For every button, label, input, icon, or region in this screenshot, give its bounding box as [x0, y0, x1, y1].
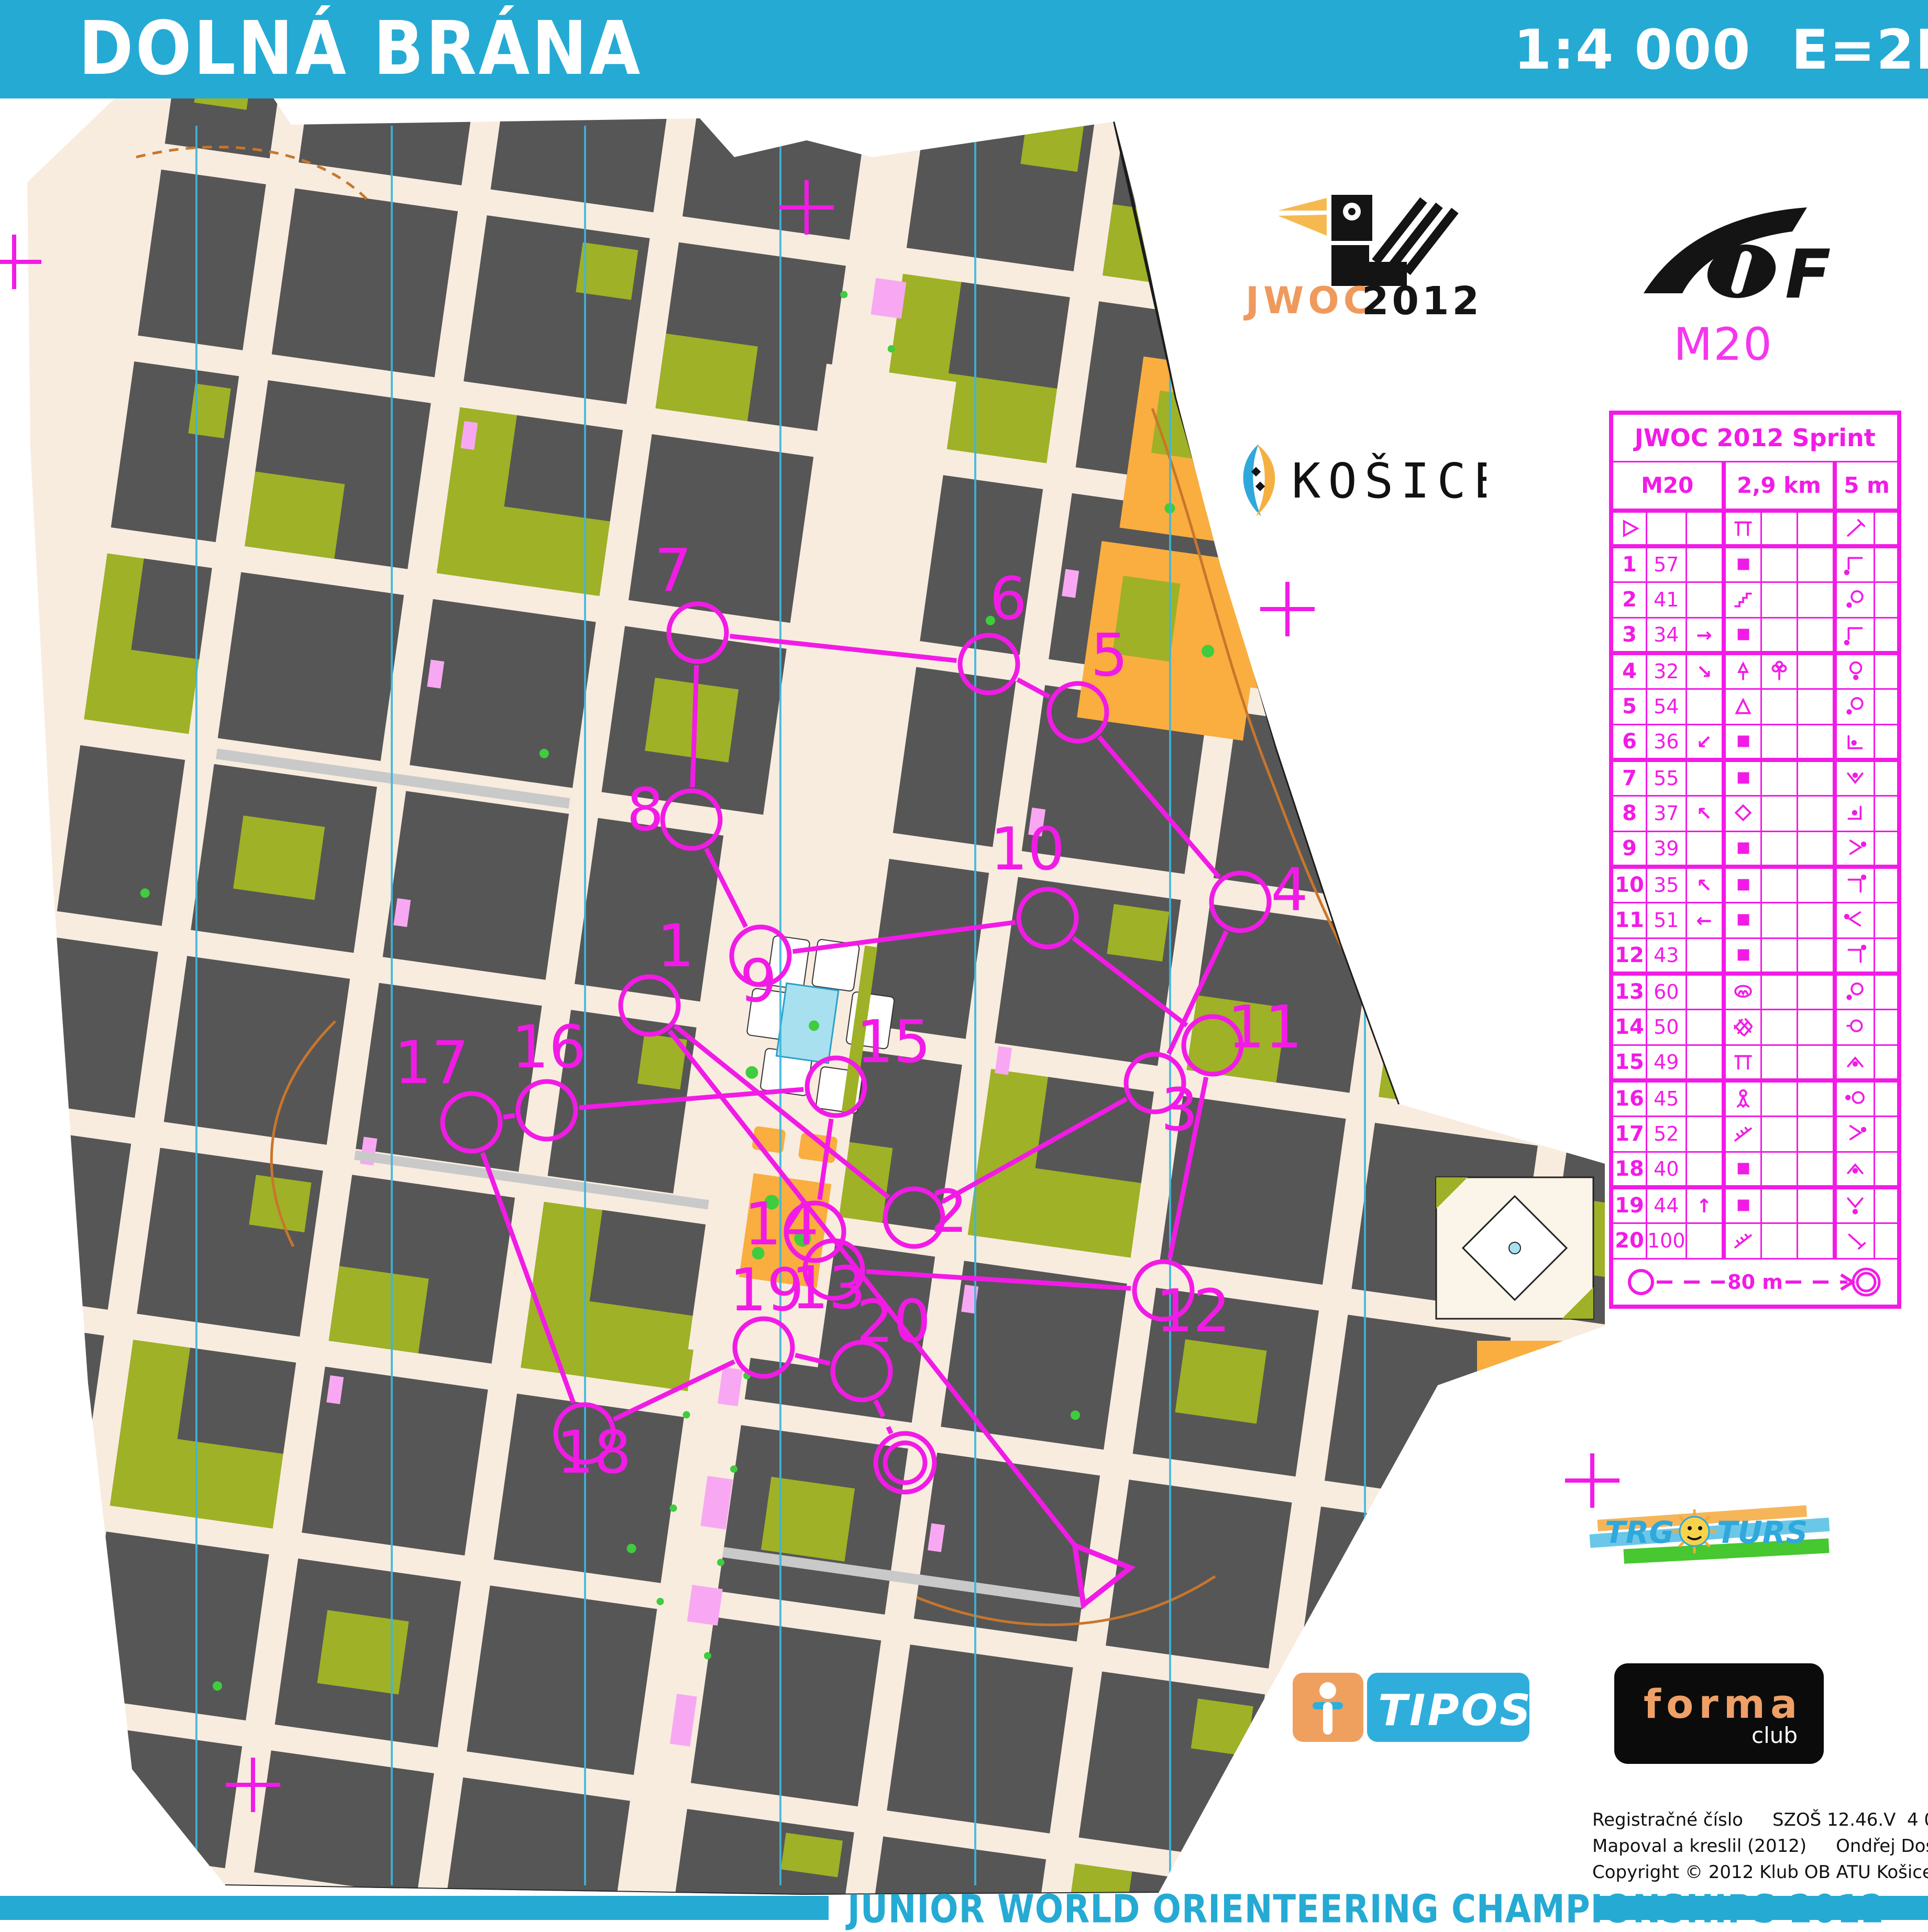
- card-colH: [1874, 831, 1899, 867]
- card-colH: [1874, 546, 1899, 582]
- banner-text: JUNIOR WORLD ORIENTEERING CHAMPIONSHIPS …: [847, 1887, 1591, 1932]
- card-colE: [1761, 546, 1797, 582]
- card-colG: [1835, 974, 1875, 1009]
- card-colG: [1835, 831, 1875, 867]
- corner-a-icon: [1843, 553, 1867, 577]
- card-colD: [1724, 974, 1761, 1009]
- card-colC: [1686, 582, 1724, 617]
- card-colC: [1686, 1116, 1724, 1152]
- crosshatch-icon: [1731, 1015, 1755, 1039]
- card-colH: [1874, 1080, 1899, 1116]
- card-colD: [1724, 1045, 1761, 1080]
- trgoturs-right: TURS: [1717, 1515, 1808, 1550]
- credit-row: Registračné číslo SZOŠ 12.46.V 4 000: [1592, 1807, 1928, 1833]
- control-number-9: 9: [740, 947, 777, 1015]
- card-colE: [1761, 796, 1797, 831]
- card-row-19: 19 44 ↑: [1611, 1187, 1899, 1223]
- corner-c-icon: [1843, 943, 1867, 967]
- card-colE: [1761, 867, 1797, 902]
- control-number-18: 18: [557, 1419, 632, 1487]
- card-colF: [1797, 546, 1835, 582]
- forma-sub: club: [1751, 1723, 1798, 1748]
- statue-icon: [1731, 1087, 1755, 1111]
- card-colD: [1724, 724, 1761, 760]
- diamond-icon: [1731, 801, 1755, 825]
- card-colC: [1686, 1045, 1724, 1080]
- control-number-8: 8: [626, 776, 664, 844]
- card-colD: [1724, 760, 1761, 796]
- canopy-icon: [1731, 516, 1755, 540]
- card-colC: [1686, 511, 1724, 546]
- card-colG: [1835, 653, 1875, 689]
- card-class-row: M20 2,9 km 5 m: [1611, 462, 1899, 511]
- card-colG: [1835, 1045, 1875, 1080]
- card-code: 34: [1647, 617, 1687, 653]
- card-colD: [1724, 796, 1761, 831]
- card-colE: [1761, 1223, 1797, 1258]
- card-colG: [1835, 1187, 1875, 1223]
- control-description-card: JWOC 2012 Sprint M20 2,9 km 5 m 1 57 2 4…: [1609, 411, 1901, 1309]
- card-colH: [1874, 511, 1899, 546]
- card-colF: [1797, 902, 1835, 938]
- card-row-2: 2 41: [1611, 582, 1899, 617]
- dot-circle-icon: [1843, 1087, 1867, 1111]
- card-length: 2,9 km: [1724, 462, 1835, 511]
- circle-dot-sw-icon: [1843, 694, 1867, 719]
- card-colF: [1797, 831, 1835, 867]
- card-code: 32: [1647, 653, 1687, 689]
- card-no: 18: [1611, 1152, 1647, 1187]
- card-colH: [1874, 724, 1899, 760]
- card-colD: [1724, 1116, 1761, 1152]
- bush-icon: [1767, 659, 1791, 683]
- forma-club-logo: forma club: [1614, 1663, 1829, 1768]
- card-row-3: 3 34 →: [1611, 617, 1899, 653]
- card-no: 19: [1611, 1187, 1647, 1223]
- start-tri-icon: [1617, 516, 1641, 540]
- control-number-2: 2: [930, 1178, 967, 1246]
- building-icon: [1731, 873, 1755, 897]
- card-colG: [1835, 902, 1875, 938]
- card-colF: [1797, 1045, 1835, 1080]
- card-code: 40: [1647, 1152, 1687, 1187]
- card-colD: [1724, 938, 1761, 974]
- card-colD: [1724, 867, 1761, 902]
- triangle-icon: [1731, 694, 1755, 719]
- v-dot-below-icon: [1843, 1194, 1867, 1218]
- map-title: DOLNÁ BRÁNA: [79, 5, 642, 92]
- card-colG: [1835, 1116, 1875, 1152]
- kosice-wordmark: KOŠICE: [1292, 452, 1486, 509]
- card-code: 41: [1647, 582, 1687, 617]
- wall-icon: [1731, 1229, 1755, 1253]
- building-icon: [1731, 836, 1755, 860]
- card-colG: [1835, 582, 1875, 617]
- card-title: JWOC 2012 Sprint: [1611, 413, 1899, 462]
- credit-value: SZOŠ 12.46.V 4 000: [1772, 1807, 1928, 1833]
- credit-row: Copyright © 2012 Klub OB ATU Košice: [1592, 1859, 1928, 1885]
- card-colG: [1835, 689, 1875, 724]
- corner-c-icon: [1843, 873, 1867, 897]
- card-row-5: 5 54: [1611, 689, 1899, 724]
- card-colH: [1874, 653, 1899, 689]
- card-colC: ↘: [1686, 653, 1724, 689]
- card-colG: [1835, 796, 1875, 831]
- card-no: 5: [1611, 689, 1647, 724]
- card-code: 43: [1647, 938, 1687, 974]
- card-no: 6: [1611, 724, 1647, 760]
- control-number-6: 6: [989, 565, 1027, 633]
- control-number-1: 1: [657, 912, 694, 980]
- svg-text:80 m: 80 m: [1727, 1271, 1783, 1294]
- card-colE: [1761, 617, 1797, 653]
- building-icon: [1731, 553, 1755, 577]
- control-number-3: 3: [1161, 1076, 1198, 1144]
- card-code: 100: [1647, 1223, 1687, 1258]
- banner-bar-left: [0, 1896, 829, 1920]
- v-dot-icon: [1843, 766, 1867, 790]
- card-colF: [1797, 582, 1835, 617]
- card-colC: [1686, 1152, 1724, 1187]
- card-colG: [1835, 724, 1875, 760]
- card-colF: [1797, 653, 1835, 689]
- building-icon: [1731, 766, 1755, 790]
- card-colH: [1874, 1152, 1899, 1187]
- card-colF: [1797, 938, 1835, 974]
- card-colF: [1797, 1080, 1835, 1116]
- card-colG: [1835, 617, 1875, 653]
- card-code: 51: [1647, 902, 1687, 938]
- card-colE: [1761, 1009, 1797, 1045]
- tree-icon: [1731, 659, 1755, 683]
- card-colH: [1874, 582, 1899, 617]
- card-colG: [1835, 511, 1875, 546]
- card-colG: [1835, 1152, 1875, 1187]
- card-scale: 80 m: [1611, 1258, 1899, 1307]
- card-colE: [1761, 1080, 1797, 1116]
- card-colC: ←: [1686, 902, 1724, 938]
- card-colD: [1724, 582, 1761, 617]
- bird-beak-lower-icon: [1278, 215, 1327, 236]
- card-colE: [1761, 974, 1797, 1009]
- forma-wordmark: forma: [1644, 1681, 1802, 1727]
- card-colF: [1797, 617, 1835, 653]
- card-no: 1: [1611, 546, 1647, 582]
- card-colE: [1761, 1187, 1797, 1223]
- tick-se-icon: [1843, 1229, 1867, 1253]
- tipos-wordmark: TIPOS: [1378, 1686, 1533, 1736]
- card-code: 45: [1647, 1080, 1687, 1116]
- card-colG: [1835, 546, 1875, 582]
- card-code: 36: [1647, 724, 1687, 760]
- card-colH: [1874, 1045, 1899, 1080]
- card-code: 37: [1647, 796, 1687, 831]
- building-icon: [1731, 623, 1755, 647]
- card-colC: [1686, 1080, 1724, 1116]
- card-no: 12: [1611, 938, 1647, 974]
- card-colD: [1724, 653, 1761, 689]
- card-row-17: 17 52: [1611, 1116, 1899, 1152]
- card-no: 17: [1611, 1116, 1647, 1152]
- card-colH: [1874, 1116, 1899, 1152]
- card-colE: [1761, 582, 1797, 617]
- card-no: 10: [1611, 867, 1647, 902]
- card-row-start: [1611, 511, 1899, 546]
- card-colD: [1724, 1080, 1761, 1116]
- card-colD: [1724, 902, 1761, 938]
- credit-label: Mapoval a kreslil (2012): [1592, 1833, 1806, 1859]
- iof-logo: F: [1634, 204, 1859, 314]
- stairs-icon: [1731, 588, 1755, 612]
- card-colG: [1835, 1080, 1875, 1116]
- card-code: 57: [1647, 546, 1687, 582]
- card-row-10: 10 35 ↖: [1611, 867, 1899, 902]
- control-number-4: 4: [1271, 856, 1308, 924]
- kosice-eye-orange-icon: [1256, 444, 1275, 516]
- card-colE: [1761, 760, 1797, 796]
- card-colE: [1761, 1045, 1797, 1080]
- card-no: 16: [1611, 1080, 1647, 1116]
- circle-tick-icon: [1843, 1015, 1867, 1039]
- card-code: 44: [1647, 1187, 1687, 1223]
- card-code: 55: [1647, 760, 1687, 796]
- card-colC: [1686, 831, 1724, 867]
- card-colG: [1835, 867, 1875, 902]
- card-no: 7: [1611, 760, 1647, 796]
- credit-label: Copyright © 2012 Klub OB ATU Košice: [1592, 1859, 1928, 1885]
- card-colE: [1761, 724, 1797, 760]
- card-code: 50: [1647, 1009, 1687, 1045]
- corner-b-icon: [1843, 801, 1867, 825]
- card-colC: [1686, 546, 1724, 582]
- circle-dot-sw-icon: [1843, 588, 1867, 612]
- card-colH: [1874, 974, 1899, 1009]
- card-code: 35: [1647, 867, 1687, 902]
- control-number-12: 12: [1156, 1277, 1231, 1345]
- card-colF: [1797, 974, 1835, 1009]
- control-number-16: 16: [512, 1013, 587, 1081]
- card-no: 4: [1611, 653, 1647, 689]
- card-row-14: 14 50: [1611, 1009, 1899, 1045]
- bird-beak-icon: [1278, 198, 1327, 211]
- card-colF: [1797, 760, 1835, 796]
- orienteering-map-sheet: { "colors": { "header_cyan": "#25AAD4", …: [0, 0, 1928, 1932]
- card-colC: [1686, 760, 1724, 796]
- card-colD: [1724, 546, 1761, 582]
- card-code: 39: [1647, 831, 1687, 867]
- building-icon: [1731, 908, 1755, 932]
- card-no: 20: [1611, 1223, 1647, 1258]
- wall-icon: [1731, 1122, 1755, 1146]
- card-no: 8: [1611, 796, 1647, 831]
- card-colH: [1874, 867, 1899, 902]
- card-row-18: 18 40: [1611, 1152, 1899, 1187]
- card-no: [1611, 511, 1647, 546]
- corner-dot-in-icon: [1843, 730, 1867, 754]
- card-colF: [1797, 1009, 1835, 1045]
- card-colD: [1724, 831, 1761, 867]
- control-number-17: 17: [394, 1029, 469, 1097]
- hat-dot-icon: [1843, 1157, 1867, 1181]
- card-colH: [1874, 617, 1899, 653]
- card-colE: [1761, 511, 1797, 546]
- building-icon: [1731, 1157, 1755, 1181]
- card-row-7: 7 55: [1611, 760, 1899, 796]
- credit-value: Ondřej Dostál: [1836, 1833, 1928, 1859]
- card-colH: [1874, 1009, 1899, 1045]
- card-row-15: 15 49: [1611, 1045, 1899, 1080]
- building-icon: [1731, 943, 1755, 967]
- card-no: 2: [1611, 582, 1647, 617]
- card-row-13: 13 60: [1611, 974, 1899, 1009]
- control-description-table: JWOC 2012 Sprint M20 2,9 km 5 m 1 57 2 4…: [1609, 411, 1901, 1309]
- control-number-19: 19: [730, 1256, 805, 1324]
- card-colC: [1686, 689, 1724, 724]
- building-icon: [1731, 730, 1755, 754]
- card-no: 15: [1611, 1045, 1647, 1080]
- card-colD: [1724, 689, 1761, 724]
- card-colE: [1761, 938, 1797, 974]
- map-terrain: [0, 0, 1821, 1932]
- card-colH: [1874, 796, 1899, 831]
- card-code: 60: [1647, 974, 1687, 1009]
- card-colC: ↖: [1686, 796, 1724, 831]
- bird-wing-stripes-icon: [1375, 200, 1455, 272]
- card-colD: [1724, 617, 1761, 653]
- card-no: 9: [1611, 831, 1647, 867]
- card-colC: ↙: [1686, 724, 1724, 760]
- circle-dot-s-icon: [1843, 659, 1867, 683]
- card-colD: [1724, 1152, 1761, 1187]
- card-code: 54: [1647, 689, 1687, 724]
- card-colF: [1797, 867, 1835, 902]
- card-colE: [1761, 1152, 1797, 1187]
- course-leg: [503, 1116, 515, 1117]
- iof-letter-f: F: [1785, 236, 1831, 314]
- oval-m-icon: [1731, 980, 1755, 1004]
- control-number-20: 20: [856, 1288, 931, 1356]
- control-number-5: 5: [1090, 622, 1128, 690]
- card-colG: [1835, 760, 1875, 796]
- card-code: 52: [1647, 1116, 1687, 1152]
- map-credits: Registračné číslo SZOŠ 12.46.V 4 000 Map…: [1592, 1807, 1928, 1885]
- card-colC: [1686, 974, 1724, 1009]
- card-row-11: 11 51 ←: [1611, 902, 1899, 938]
- gt-dot-icon: [1843, 1122, 1867, 1146]
- card-colH: [1874, 938, 1899, 974]
- card-row-20: 20 100: [1611, 1223, 1899, 1258]
- card-colC: →: [1686, 617, 1724, 653]
- card-colD: [1724, 1223, 1761, 1258]
- control-number-7: 7: [654, 537, 691, 605]
- corner-a-icon: [1843, 623, 1867, 647]
- card-no: 3: [1611, 617, 1647, 653]
- card-colF: [1797, 1223, 1835, 1258]
- card-row-4: 4 32 ↘: [1611, 653, 1899, 689]
- credit-label: Registračné číslo: [1592, 1807, 1743, 1833]
- trgoturs-logo: TRG TURS: [1587, 1499, 1838, 1577]
- card-colE: [1761, 831, 1797, 867]
- card-colC: [1686, 1223, 1724, 1258]
- card-colH: [1874, 689, 1899, 724]
- card-colG: [1835, 938, 1875, 974]
- card-row-16: 16 45: [1611, 1080, 1899, 1116]
- card-colH: [1874, 1223, 1899, 1258]
- card-colE: [1761, 689, 1797, 724]
- card-code: 49: [1647, 1045, 1687, 1080]
- card-row-12: 12 43: [1611, 938, 1899, 974]
- card-no: 13: [1611, 974, 1647, 1009]
- card-colG: [1835, 1009, 1875, 1045]
- tipos-logo: TIPOS: [1293, 1669, 1534, 1747]
- circle-dot-sw-icon: [1843, 980, 1867, 1004]
- jwoc-word: JWOC: [1243, 279, 1374, 322]
- building-icon: [1731, 1194, 1755, 1218]
- card-colF: [1797, 689, 1835, 724]
- card-colC: [1686, 938, 1724, 974]
- kosice-logo: KOŠICE: [1230, 439, 1486, 525]
- card-colE: [1761, 902, 1797, 938]
- card-colF: [1797, 796, 1835, 831]
- class-label: M20: [1650, 318, 1797, 371]
- credit-row: Mapoval a kreslil (2012) Ondřej Dostál: [1592, 1833, 1928, 1859]
- card-colC: ↖: [1686, 867, 1724, 902]
- contour-interval: E=2M: [1791, 18, 1928, 82]
- gt-dot-icon: [1843, 836, 1867, 860]
- card-colD: [1724, 511, 1761, 546]
- pond: [776, 983, 839, 1063]
- canopy-icon: [1731, 1050, 1755, 1074]
- card-no: 11: [1611, 902, 1647, 938]
- card-row-8: 8 37 ↖: [1611, 796, 1899, 831]
- control-number-10: 10: [990, 815, 1065, 884]
- card-scale-row: 80 m: [1611, 1258, 1899, 1307]
- kosice-eye-blue-icon: [1243, 444, 1261, 516]
- card-colC: ↑: [1686, 1187, 1724, 1223]
- card-colF: [1797, 1116, 1835, 1152]
- card-title-row: JWOC 2012 Sprint: [1611, 413, 1899, 462]
- card-colH: [1874, 1187, 1899, 1223]
- hat-dot-icon: [1843, 1050, 1867, 1074]
- card-colE: [1761, 653, 1797, 689]
- card-colF: [1797, 1187, 1835, 1223]
- card-colF: [1797, 511, 1835, 546]
- map-scale-label: 1:4 000 E=2M: [1514, 18, 1928, 82]
- card-row-1: 1 57: [1611, 546, 1899, 582]
- card-colH: [1874, 902, 1899, 938]
- scale-value: 1:4 000: [1514, 18, 1751, 82]
- jwoc-2012-logo: JWOC 2012: [1215, 183, 1498, 325]
- card-colD: [1724, 1009, 1761, 1045]
- card-colH: [1874, 760, 1899, 796]
- card-row-9: 9 39: [1611, 831, 1899, 867]
- banner-bar-right: [1594, 1896, 1928, 1920]
- control-number-11: 11: [1228, 993, 1303, 1062]
- jwoc-year: 2012: [1362, 279, 1482, 324]
- tick-ne-icon: [1843, 516, 1867, 540]
- card-colG: [1835, 1223, 1875, 1258]
- card-colC: [1686, 1009, 1724, 1045]
- card-row-6: 6 36 ↙: [1611, 724, 1899, 760]
- card-climb: 5 m: [1835, 462, 1899, 511]
- trgoturs-left: TRG: [1605, 1515, 1674, 1550]
- card-code: [1647, 511, 1687, 546]
- lt-dot-icon: [1843, 908, 1867, 932]
- card-colE: [1761, 1116, 1797, 1152]
- card-no: 14: [1611, 1009, 1647, 1045]
- control-number-15: 15: [856, 1008, 931, 1076]
- card-colF: [1797, 724, 1835, 760]
